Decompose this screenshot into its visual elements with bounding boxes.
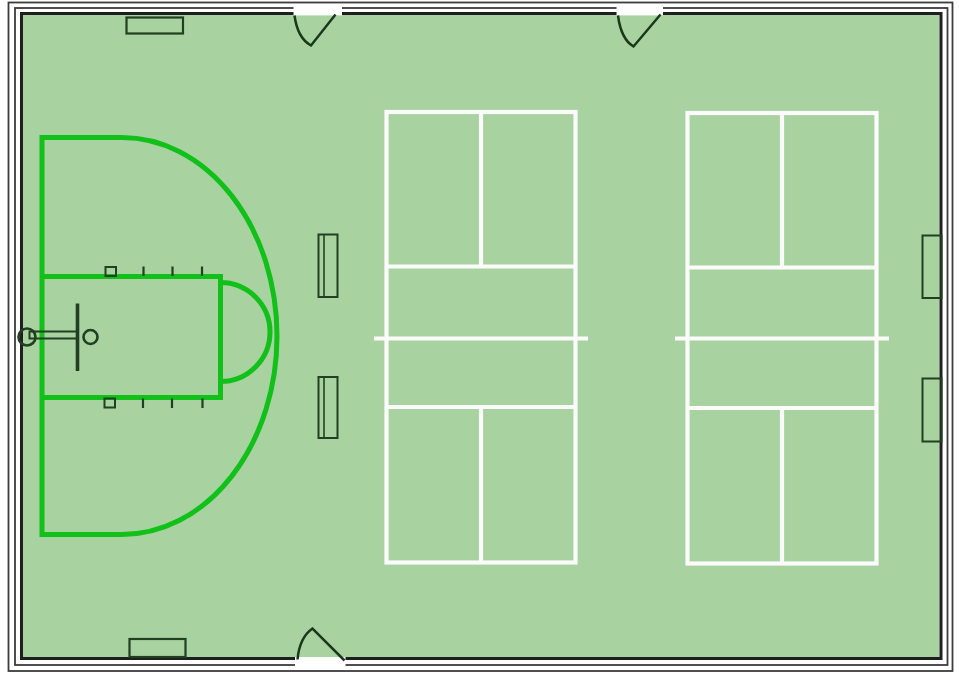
gym-floor-plan xyxy=(0,0,959,675)
door-opening-top-right xyxy=(617,5,664,16)
door-opening-top-left xyxy=(294,5,343,16)
floor-plan-drawing xyxy=(0,0,959,675)
door-opening-bottom xyxy=(295,657,346,668)
